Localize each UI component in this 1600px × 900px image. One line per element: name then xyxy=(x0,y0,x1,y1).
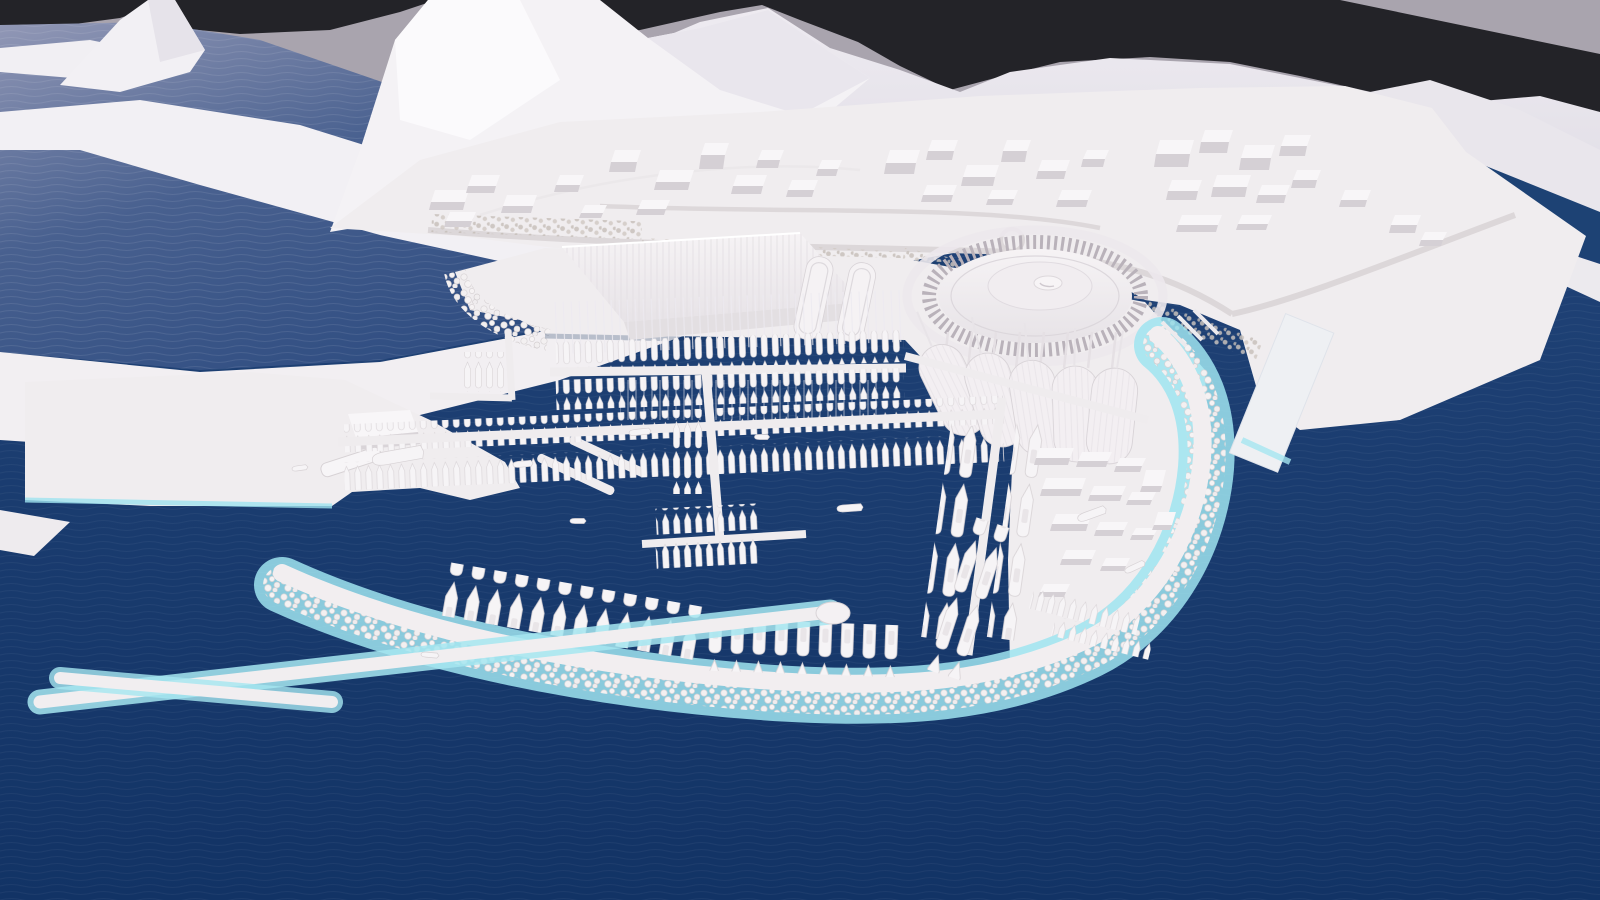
city-building-top-face xyxy=(1281,135,1311,146)
city-building-side-face xyxy=(554,185,580,192)
city-building-top-face xyxy=(928,140,958,151)
city-building-top-face xyxy=(1258,185,1290,195)
city-building-side-face xyxy=(1291,180,1317,188)
city-building-top-face xyxy=(988,190,1018,199)
city-building-top-face xyxy=(1293,170,1321,180)
city-building-top-face xyxy=(1178,215,1222,225)
city-building-side-face xyxy=(444,221,472,227)
city-building-top-face xyxy=(611,150,641,162)
boatyard-building-side-face xyxy=(1114,466,1142,472)
boat-row xyxy=(460,352,506,392)
boatyard-building-side-face xyxy=(1050,524,1088,531)
city-building-top-face xyxy=(503,195,537,206)
city-building xyxy=(654,170,694,190)
marina-render-canvas xyxy=(0,0,1600,900)
city-building-side-face xyxy=(1166,191,1198,200)
city-building-side-face xyxy=(926,151,954,160)
city-building-side-face xyxy=(961,177,995,186)
city-building-side-face xyxy=(1199,142,1229,153)
city-building-side-face xyxy=(921,195,953,202)
boatyard-building xyxy=(1060,550,1096,565)
city-building xyxy=(1211,175,1251,197)
city-building-top-face xyxy=(1238,215,1272,224)
city-building-side-face xyxy=(884,163,916,174)
city-building-side-face xyxy=(1419,240,1443,246)
boat-row xyxy=(670,410,706,494)
city-building-top-face xyxy=(1241,145,1275,158)
boatyard-building-top-face xyxy=(1102,558,1130,566)
boat-row xyxy=(655,503,760,534)
boatyard-building-side-face xyxy=(1140,486,1162,492)
render-viewport xyxy=(0,0,1600,900)
city-building-top-face xyxy=(468,175,500,186)
arm-round-tip xyxy=(816,602,850,624)
city-building-top-face xyxy=(1421,232,1447,240)
city-building-side-face xyxy=(786,190,814,197)
city-building xyxy=(1176,215,1222,232)
city-building-top-face xyxy=(1213,175,1251,187)
city-building-side-face xyxy=(466,186,496,193)
boatyard-building-top-face xyxy=(1078,452,1112,461)
boatyard-building-top-face xyxy=(1142,470,1166,486)
arena-top-knob xyxy=(1034,276,1062,290)
city-building-top-face xyxy=(1156,140,1194,154)
boat-underway xyxy=(755,435,770,440)
city-building-side-face xyxy=(1176,225,1218,232)
city-building-side-face xyxy=(731,186,763,194)
city-building-side-face xyxy=(986,199,1014,205)
city-building-top-face xyxy=(431,190,469,202)
city-building-side-face xyxy=(429,202,465,210)
city-building-top-face xyxy=(701,143,729,155)
boatyard-building-side-face xyxy=(1094,530,1124,536)
city-building xyxy=(884,150,920,174)
city-building xyxy=(501,195,537,213)
city-building xyxy=(429,190,469,210)
city-building-side-face xyxy=(1239,158,1271,170)
boatyard-building-top-face xyxy=(1036,448,1074,458)
city-building-side-face xyxy=(1036,171,1066,179)
city-building-top-face xyxy=(758,150,784,160)
city-building-top-face xyxy=(1341,190,1371,200)
boatyard-building-side-face xyxy=(1088,495,1122,501)
city-building-top-face xyxy=(1168,180,1202,191)
city-building-top-face xyxy=(963,165,999,177)
city-building-side-face xyxy=(1389,225,1417,233)
city-building-top-face xyxy=(886,150,920,163)
city-building xyxy=(1154,140,1194,167)
city-building-side-face xyxy=(636,209,666,215)
city-building xyxy=(731,175,767,194)
boatyard-building-side-face xyxy=(1060,559,1092,565)
city-building-side-face xyxy=(1236,224,1268,230)
city-building-side-face xyxy=(1154,154,1190,167)
city-building-top-face xyxy=(818,160,842,169)
city-building-top-face xyxy=(1038,160,1070,171)
city-building-side-face xyxy=(579,213,603,218)
city-building-top-face xyxy=(446,212,476,221)
city-building-side-face xyxy=(654,182,690,190)
city-building-top-face xyxy=(788,180,818,190)
city-building-top-face xyxy=(581,205,607,213)
boatyard-building-side-face xyxy=(1100,566,1126,571)
city-building-top-face xyxy=(1391,215,1421,225)
boatyard-building-top-face xyxy=(1090,486,1126,495)
boatyard-building xyxy=(1076,452,1112,467)
boatyard-building-top-face xyxy=(1128,492,1156,500)
city-building xyxy=(1166,180,1202,200)
city-building-side-face xyxy=(699,155,725,169)
city-building-side-face xyxy=(1001,151,1027,162)
city-building-side-face xyxy=(1339,200,1367,207)
city-building-top-face xyxy=(638,200,670,209)
city-building-top-face xyxy=(733,175,767,186)
city-building xyxy=(1056,190,1092,207)
city-building-side-face xyxy=(1279,146,1307,156)
boatyard-building-side-face xyxy=(1126,500,1152,505)
boatyard-building-top-face xyxy=(1116,458,1146,466)
city-building-top-face xyxy=(1201,130,1233,142)
city-building-top-face xyxy=(656,170,694,182)
boatyard-building xyxy=(1040,478,1086,496)
city-building-side-face xyxy=(1081,159,1105,167)
city-building xyxy=(1239,145,1275,170)
city-building-side-face xyxy=(1211,187,1247,197)
boat-underway xyxy=(570,519,586,524)
boatyard-building-side-face xyxy=(1040,489,1082,496)
city-building xyxy=(961,165,999,186)
boatyard-building xyxy=(1088,486,1126,501)
city-building-side-face xyxy=(1256,195,1286,203)
boatyard-building-top-face xyxy=(1042,478,1086,489)
city-building xyxy=(921,185,957,202)
city-building-side-face xyxy=(816,169,838,176)
boat-hull xyxy=(570,519,586,524)
city-building-side-face xyxy=(1056,200,1088,207)
boatyard-building-side-face xyxy=(1152,525,1172,530)
boatyard-building-top-face xyxy=(1096,522,1128,530)
city-building xyxy=(1236,215,1272,230)
boatyard-building-top-face xyxy=(1062,550,1096,559)
boatyard-building-side-face xyxy=(1076,461,1108,467)
boat-hull xyxy=(755,435,770,440)
boatyard-building-side-face xyxy=(1130,535,1154,540)
city-building-top-face xyxy=(1003,140,1031,151)
city-building-top-face xyxy=(923,185,957,195)
city-building-side-face xyxy=(609,162,637,172)
city-building-top-face xyxy=(1083,150,1109,159)
city-building-top-face xyxy=(1058,190,1092,200)
boat-row xyxy=(655,537,760,568)
city-building-top-face xyxy=(556,175,584,185)
boatyard-building-side-face xyxy=(1034,458,1070,465)
city-building-side-face xyxy=(501,206,533,213)
city-building-side-face xyxy=(756,160,780,168)
boatyard-building xyxy=(1034,448,1074,465)
